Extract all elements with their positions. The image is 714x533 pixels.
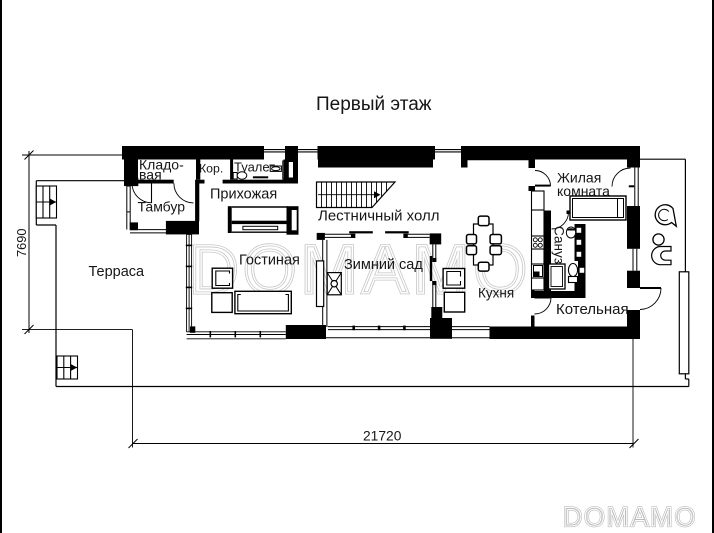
svg-text:Кор.: Кор. <box>199 162 223 176</box>
svg-text:Кухня: Кухня <box>478 286 514 301</box>
svg-text:21720: 21720 <box>363 429 402 444</box>
svg-text:Терраса: Терраса <box>89 264 146 280</box>
svg-text:Зимний сад: Зимний сад <box>344 257 423 273</box>
svg-text:Гостиная: Гостиная <box>239 253 300 269</box>
svg-text:Тамбур: Тамбур <box>138 199 186 215</box>
svg-text:Котельная: Котельная <box>556 301 629 318</box>
svg-text:Лестничный холл: Лестничный холл <box>318 208 440 225</box>
svg-text:7690: 7690 <box>14 229 29 257</box>
svg-text:DOMAMO: DOMAMO <box>563 502 697 532</box>
svg-text:Прихожая: Прихожая <box>210 187 277 203</box>
svg-text:Первый этаж: Первый этаж <box>316 94 432 115</box>
